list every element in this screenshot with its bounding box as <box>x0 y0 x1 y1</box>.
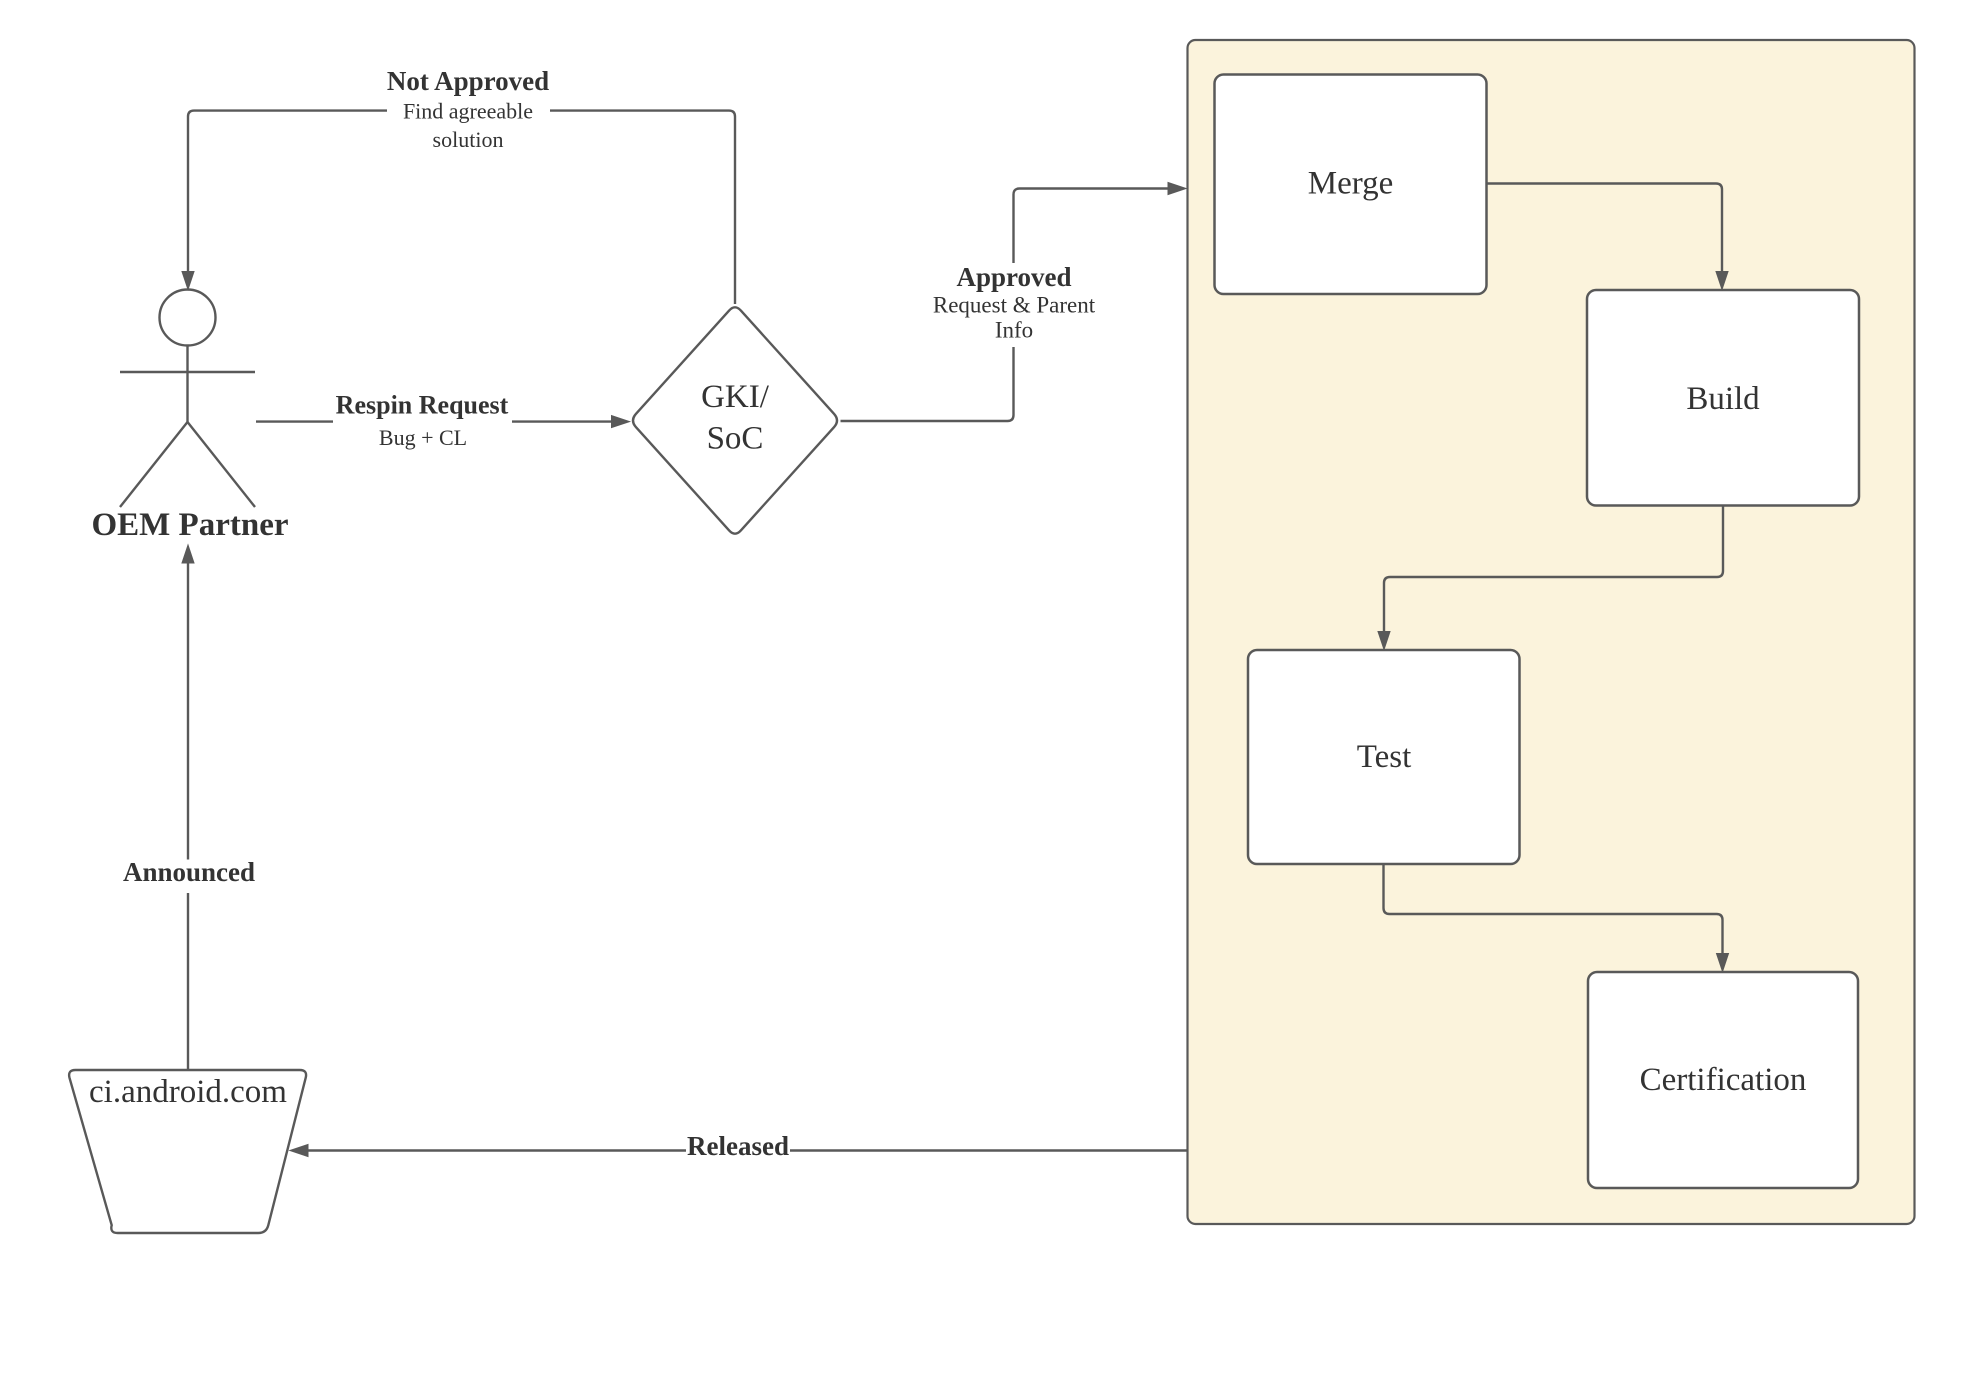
svg-text:Find agreeable: Find agreeable <box>403 99 533 124</box>
svg-text:Respin Request: Respin Request <box>336 391 509 420</box>
svg-text:SoC: SoC <box>707 421 764 457</box>
svg-text:Merge: Merge <box>1308 166 1394 202</box>
svg-text:Not Approved: Not Approved <box>387 66 549 96</box>
svg-text:Approved: Approved <box>956 262 1071 292</box>
svg-text:GKI/: GKI/ <box>701 379 770 415</box>
svg-text:Certification: Certification <box>1640 1062 1807 1098</box>
svg-text:Test: Test <box>1357 739 1412 775</box>
svg-text:Request & Parent: Request & Parent <box>933 293 1096 318</box>
svg-text:Announced: Announced <box>123 857 255 887</box>
svg-text:Released: Released <box>687 1131 789 1161</box>
svg-text:ci.android.com: ci.android.com <box>89 1074 287 1110</box>
svg-text:OEM Partner: OEM Partner <box>91 507 288 543</box>
svg-text:solution: solution <box>433 127 504 152</box>
svg-text:Info: Info <box>995 318 1033 343</box>
svg-text:Build: Build <box>1686 381 1760 417</box>
svg-text:Bug + CL: Bug + CL <box>379 425 467 450</box>
